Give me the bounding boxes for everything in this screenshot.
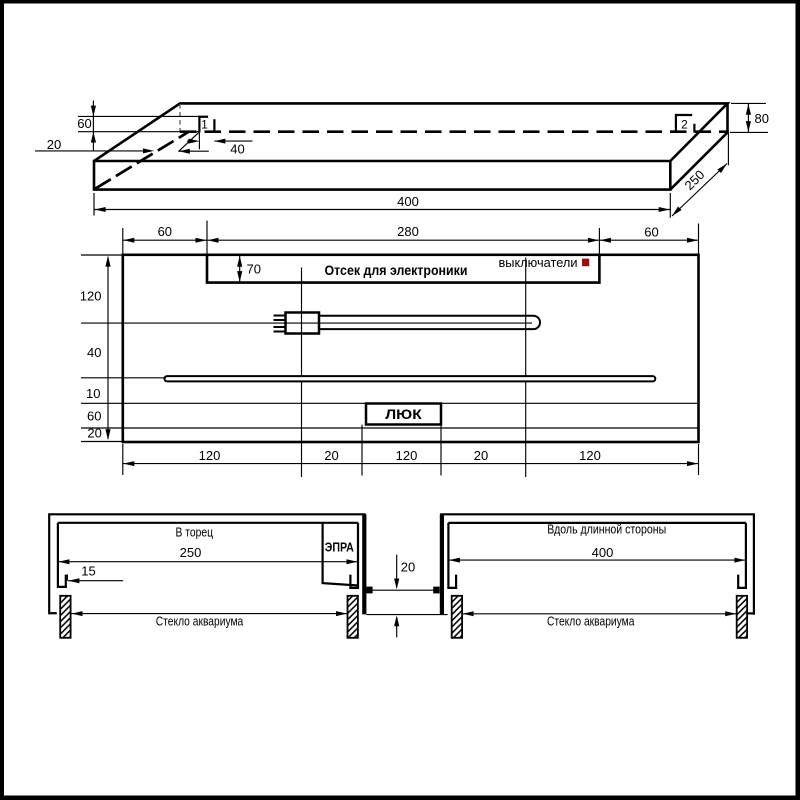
svg-text:250: 250 [180,545,202,560]
svg-text:Вдоль длинной стороны: Вдоль длинной стороны [547,523,666,537]
svg-text:400: 400 [592,545,614,560]
svg-text:400: 400 [397,194,419,209]
svg-text:120: 120 [199,448,221,463]
svg-text:10: 10 [86,386,100,401]
svg-text:15: 15 [81,564,95,579]
svg-text:Стекло аквариума: Стекло аквариума [547,615,635,629]
svg-text:Отсек для электроники: Отсек для электроники [325,263,468,278]
svg-text:ЛЮК: ЛЮК [385,407,422,422]
svg-text:выключатели: выключатели [499,256,578,270]
svg-text:40: 40 [230,142,244,157]
svg-text:2: 2 [681,117,688,131]
svg-text:120: 120 [579,448,601,463]
svg-text:120: 120 [80,289,102,304]
svg-text:70: 70 [247,262,261,277]
svg-text:20: 20 [401,560,415,575]
svg-text:80: 80 [755,111,769,126]
svg-text:60: 60 [77,116,91,131]
svg-text:Стекло аквариума: Стекло аквариума [156,615,244,629]
svg-text:60: 60 [87,409,101,424]
svg-text:60: 60 [644,225,658,240]
svg-text:280: 280 [397,224,419,239]
svg-text:ЭПРА: ЭПРА [325,540,354,554]
svg-text:60: 60 [158,224,172,239]
svg-text:40: 40 [87,345,101,360]
svg-text:20: 20 [324,448,338,463]
svg-text:20: 20 [47,137,61,152]
svg-text:1: 1 [201,118,208,132]
svg-text:20: 20 [474,448,488,463]
svg-text:В торец: В торец [176,526,214,540]
svg-text:120: 120 [396,448,418,463]
svg-text:20: 20 [87,426,101,441]
